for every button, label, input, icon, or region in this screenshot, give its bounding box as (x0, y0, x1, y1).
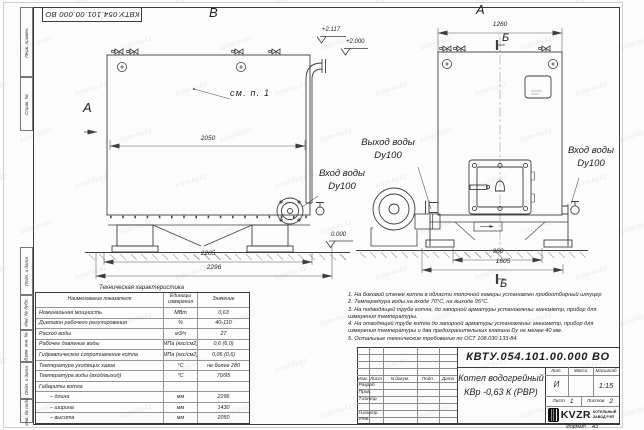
inlet-water-right-label: Вход воды Dy100 (556, 145, 626, 170)
furnace-door (469, 160, 535, 214)
table-cell: Диапазон рабочего регулирования (36, 318, 163, 329)
format-cell: Формат А3 (545, 424, 619, 430)
elevation-ground: 0.000 (331, 232, 346, 238)
table-cell: мм (163, 391, 197, 402)
lit-header: Лит. (545, 369, 568, 374)
tech-table: Наименование показателя Единицы измерени… (35, 292, 250, 424)
format-label: Формат (566, 424, 586, 430)
elevation-mark-top (341, 49, 368, 56)
inlet-water-left-text: Вход воды (309, 168, 375, 181)
drawing-sheet: kotel-kv.kzkotel-kv.kzkotel-kv.kzkotel-k… (0, 0, 644, 430)
outlet-water-dn: Dy100 (352, 150, 424, 163)
rev-header: Дата (439, 377, 457, 382)
dim-2205: 2205 (178, 251, 238, 258)
inlet-water-left-label: Вход воды Dy100 (309, 168, 375, 193)
table-cell (163, 381, 197, 392)
rev-header: Подп. (417, 377, 439, 382)
table-cell: Температура уходящих газов (36, 360, 163, 371)
table-cell: м3/ч (163, 328, 197, 339)
company-logo-cell: KVZR КОТЕЛЬНЫЙ ЗАВОД РЭП (546, 406, 618, 423)
table-cell: – высота (36, 412, 163, 423)
table-cell: мм (163, 412, 197, 423)
product-title-line2: КВр -0,63 К (РВР) (457, 385, 545, 399)
dim-1260: 1260 (470, 22, 530, 29)
elevation-mark-ground (326, 241, 353, 248)
note-line: 1. На боковой стенке котла в области топ… (348, 292, 620, 299)
sign-row-label: Утв. (359, 418, 370, 423)
left-view (85, 49, 350, 253)
table-cell: 27 (197, 328, 249, 339)
table-cell: % (163, 318, 197, 329)
view-a-arrow-label: А (83, 101, 92, 114)
sign-row-label: Н.контр. (359, 412, 379, 417)
sheet-number-cell: Лист 1 (545, 396, 581, 406)
kvzr-logo-text: KVZR (561, 409, 591, 421)
dim-2050: 2050 (178, 136, 238, 143)
product-title-line1: Котел водогрейный (457, 371, 545, 385)
ash-drawer (474, 222, 502, 231)
note-line: 2. Температура воды на входе 70°С, на вы… (348, 299, 620, 306)
table-cell: 0,63 (197, 307, 249, 318)
sign-row-label: Разраб. (359, 384, 376, 389)
inlet-water-left-dn: Dy100 (309, 181, 375, 194)
dim-2296: 2296 (184, 265, 244, 272)
table-cell: Гидравлическое сопротивление котла (36, 349, 163, 360)
table-cell: Габариты котла (36, 381, 163, 392)
rev-header: Изм. (357, 377, 369, 382)
drain-valve-right-view (562, 202, 579, 217)
sign-row-label: Пров. (359, 391, 372, 396)
product-title: Котел водогрейный КВр -0,63 К (РВР) (457, 371, 545, 399)
table-cell: 2050 (197, 412, 249, 423)
table-cell: – ширина (36, 402, 163, 413)
table-cell: МВт (163, 307, 197, 318)
elevation-mark-pipe (317, 37, 346, 44)
table-cell (197, 381, 249, 392)
table-cell: Номинальная мощность (36, 307, 163, 318)
table-cell: 2296 (197, 391, 249, 402)
view-a-label: А (476, 3, 485, 16)
elevation-top: +2.000 (346, 39, 365, 45)
sheets-total-cell: Листов 2 (581, 396, 619, 406)
lit-value: И (545, 381, 568, 389)
drain-valve-left-view (316, 203, 324, 216)
kvzr-emblem-icon (548, 408, 559, 422)
inlet-nozzle-flange (277, 198, 303, 224)
table-cell: – длина (36, 391, 163, 402)
outlet-water-text: Выход воды (352, 137, 424, 150)
elevation-pipe: +2.117 (322, 27, 340, 33)
table-cell: 40-110 (197, 318, 249, 329)
table-header: Единицы измерения (163, 293, 197, 307)
see-note-label: см. п. 1 (230, 89, 270, 98)
notes-block: 1. На боковой стенке котла в области топ… (348, 292, 620, 343)
sheets-label: Листов (587, 399, 604, 404)
table-cell: 0,6 (6,0) (197, 339, 249, 350)
section-b-top-label: Б (502, 33, 509, 44)
table-cell: 70/95 (197, 370, 249, 381)
outlet-water-label: Выход воды Dy100 (352, 137, 424, 162)
table-cell: МПа (кгс/см2) (163, 349, 197, 360)
table-cell: °С (163, 370, 197, 381)
note-line: измерения температуры и два предохраните… (348, 328, 620, 335)
format-value: А3 (592, 424, 598, 430)
scale-value: 1:15 (593, 382, 619, 390)
sheets-value: 2 (609, 398, 613, 405)
sign-row-label: Т.контр. (359, 398, 378, 403)
scale-header: Масштаб (593, 369, 619, 374)
table-cell: 0,06 (0,6) (197, 349, 249, 360)
table-cell: МПа (кгс/см2) (163, 339, 197, 350)
company-name-line2: ЗАВОД РЭП (593, 415, 616, 419)
sheet-label: Лист (553, 399, 565, 404)
table-cell: Рабочее давление воды (36, 339, 163, 350)
dim-960: 960 (468, 249, 528, 256)
table-header: Наименование показателя (36, 293, 163, 307)
nameplate (525, 76, 551, 98)
inlet-water-right-dn: Dy100 (556, 158, 626, 171)
tech-table-title: Техническая характеристика (35, 285, 248, 291)
note-line: 3. На подводящей трубе котла, до запорно… (348, 307, 620, 314)
sheet-value: 1 (570, 398, 574, 405)
section-b-bottom-label: Б (500, 279, 507, 290)
note-line: 4. На отводящей трубе котла до запорной … (348, 321, 620, 328)
table-cell: 1430 (197, 402, 249, 413)
rev-header: N докум. (383, 377, 417, 382)
table-cell: мм (163, 402, 197, 413)
dim-1605: 1605 (473, 259, 533, 266)
outlet-nozzle (426, 201, 439, 215)
rev-header: Лист (369, 377, 383, 382)
table-header: Значение (197, 293, 249, 307)
table-cell: не более 280 (197, 360, 249, 371)
note-line: 5. Остальные технические требования по О… (348, 336, 620, 343)
table-cell: °С (163, 360, 197, 371)
table-cell: Температура воды (вход/выход) (36, 370, 163, 381)
table-cell: Расход воды (36, 328, 163, 339)
mass-header: Масса (568, 369, 593, 374)
view-b-label: В (209, 6, 218, 19)
doc-number-cell: КВТУ.054.101.00.000 ВО (457, 347, 619, 367)
inlet-water-right-text: Вход воды (556, 145, 626, 158)
